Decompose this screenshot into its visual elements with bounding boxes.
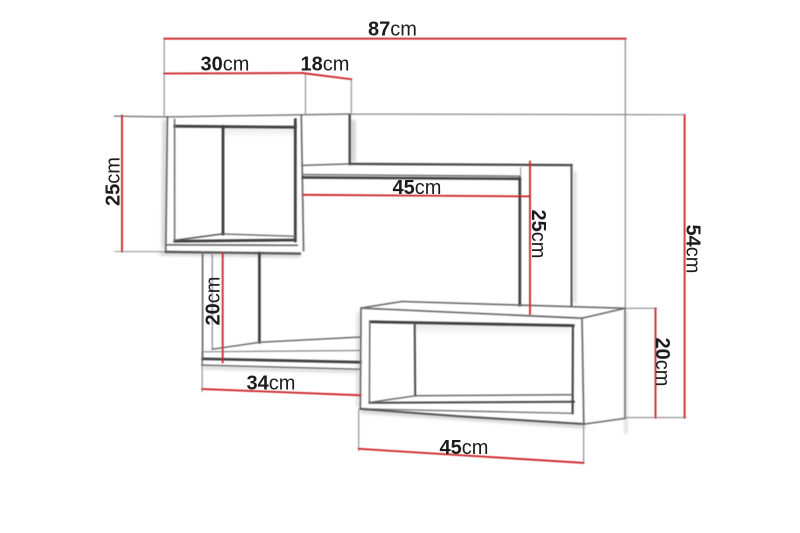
svg-text:25cm: 25cm xyxy=(527,210,549,259)
svg-text:54cm: 54cm xyxy=(682,225,704,274)
svg-text:45cm: 45cm xyxy=(393,177,442,199)
svg-text:20cm: 20cm xyxy=(203,277,225,326)
svg-text:34cm: 34cm xyxy=(247,373,296,395)
svg-text:20cm: 20cm xyxy=(651,338,673,387)
svg-text:87cm: 87cm xyxy=(368,19,417,41)
svg-text:45cm: 45cm xyxy=(440,437,489,459)
svg-text:18cm: 18cm xyxy=(301,54,350,76)
svg-text:25cm: 25cm xyxy=(103,157,125,206)
svg-text:30cm: 30cm xyxy=(201,54,250,76)
